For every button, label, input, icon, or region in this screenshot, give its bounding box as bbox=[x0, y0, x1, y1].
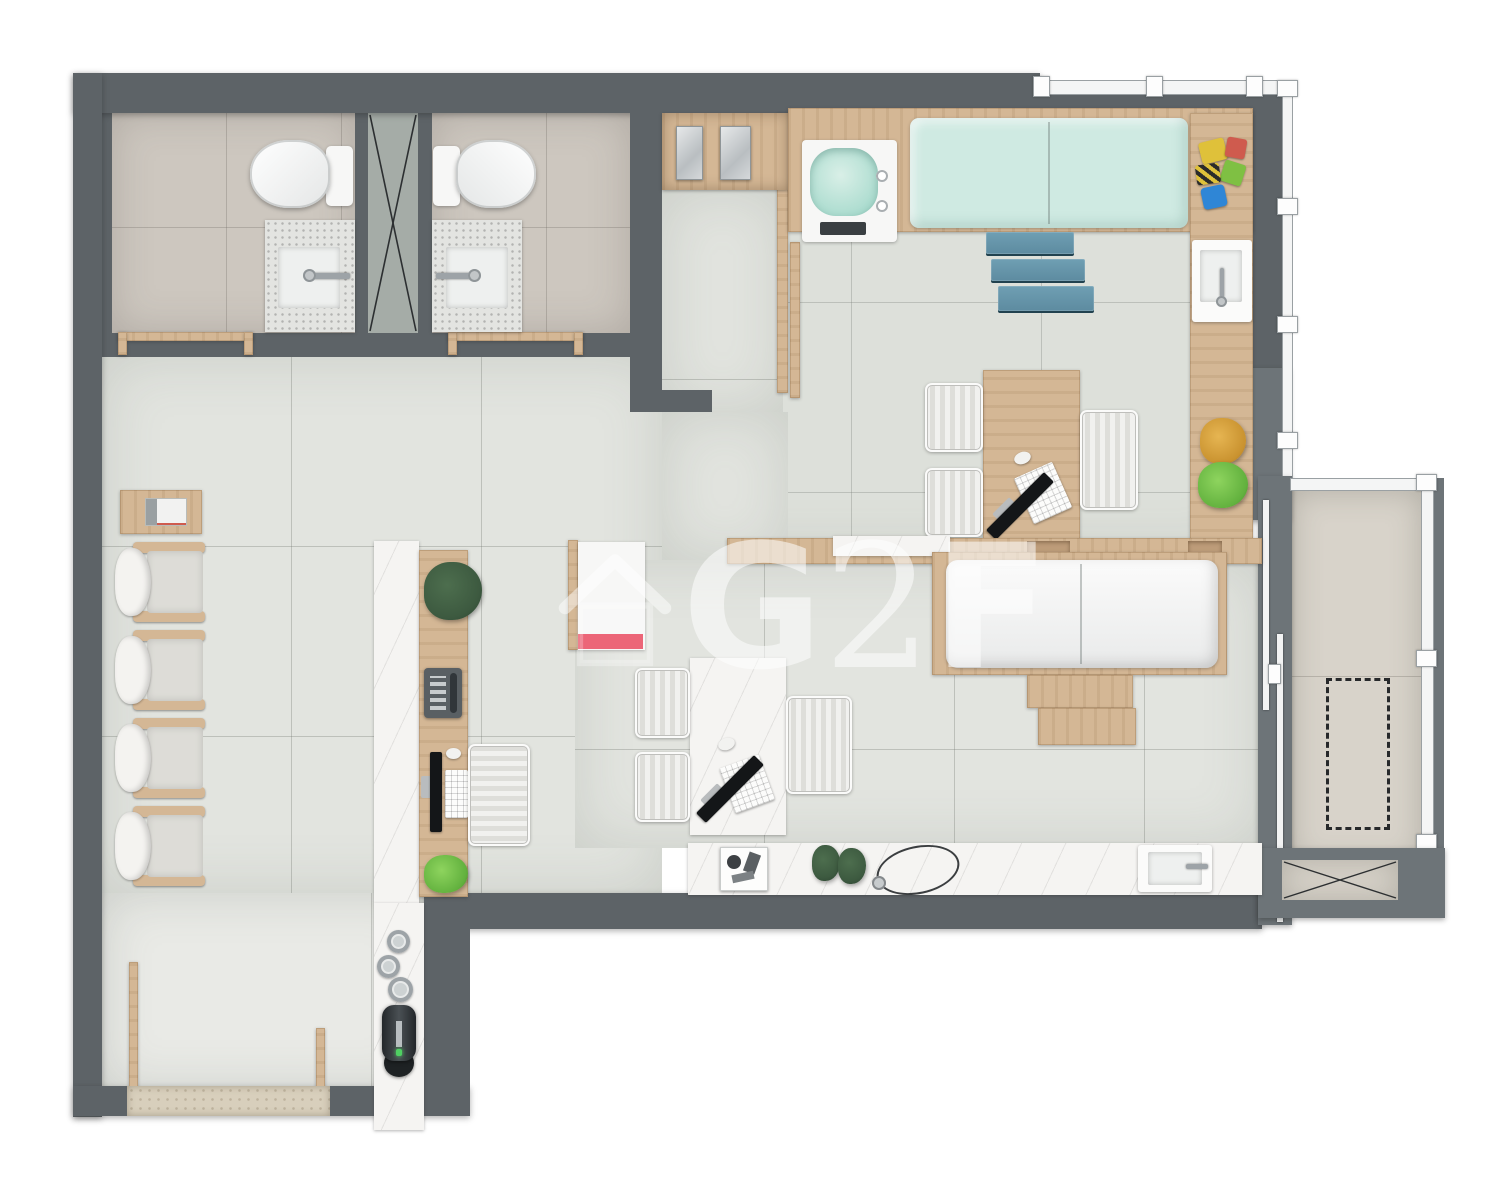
vestibule-floor bbox=[662, 190, 783, 412]
shaft-x-hatch bbox=[368, 113, 418, 333]
instrument-tray-1 bbox=[676, 126, 703, 180]
vestibule-bottom-wall bbox=[630, 390, 712, 412]
exam-pad-seam bbox=[1048, 122, 1050, 224]
faucet-1-drain bbox=[303, 269, 316, 282]
window-mullion bbox=[1277, 432, 1298, 449]
outer-wall-top bbox=[73, 73, 1040, 113]
ac-condenser-dashed-outline bbox=[1326, 678, 1390, 830]
magazines bbox=[145, 498, 187, 526]
seat-cushion bbox=[147, 727, 203, 789]
floor-plan-canvas: G 2 F bbox=[0, 0, 1500, 1189]
window-mullion bbox=[1277, 316, 1298, 333]
pediatric-sink-faucet bbox=[1220, 268, 1224, 298]
seat-cushion bbox=[147, 815, 203, 877]
bathroom-2-door-jamb-left bbox=[448, 332, 457, 355]
toy-block-red bbox=[1224, 136, 1247, 159]
coffee-cup-1 bbox=[387, 930, 410, 953]
pediatric-guest-chair-2 bbox=[925, 468, 983, 537]
seat-cushion bbox=[147, 639, 203, 701]
window-mullion bbox=[1246, 76, 1263, 97]
right-window-band bbox=[1282, 88, 1293, 480]
reception-chair bbox=[468, 744, 530, 846]
reception-mouse bbox=[446, 748, 461, 759]
exam-bed-step-1 bbox=[1027, 675, 1133, 708]
pediatric-sink-drain bbox=[1216, 296, 1227, 307]
consult-guest-chair-2 bbox=[635, 752, 690, 822]
reception-keyboard bbox=[445, 770, 468, 818]
entry-door-frame-post bbox=[129, 962, 138, 1092]
stethoscope-tube bbox=[872, 838, 964, 902]
waiting-armchair-1 bbox=[115, 542, 205, 622]
window-mullion bbox=[1277, 198, 1298, 215]
coffee-machine-led bbox=[396, 1049, 402, 1056]
mattress-seam bbox=[1080, 564, 1082, 664]
back-pillow bbox=[115, 636, 151, 704]
toilet-2-bowl bbox=[456, 140, 536, 208]
duct-shaft bbox=[368, 113, 418, 333]
balcony-top-glazing bbox=[1290, 478, 1421, 491]
seat-cushion bbox=[147, 551, 203, 613]
magazine-table bbox=[120, 490, 202, 534]
reception-monitor bbox=[430, 752, 442, 832]
instrument-tray-2 bbox=[720, 126, 751, 180]
partition-cabinet-red-stripe bbox=[578, 634, 643, 649]
toy-block-stripes bbox=[1195, 162, 1222, 185]
entry-door-leaf bbox=[316, 1028, 325, 1092]
balcony-duct-box bbox=[1282, 860, 1398, 900]
wall-right-of-bathroom2 bbox=[630, 113, 662, 412]
exam-bed-step-2 bbox=[1038, 708, 1136, 745]
bathroom-2-door-jamb-right bbox=[574, 332, 583, 355]
organizer-item bbox=[731, 871, 754, 883]
pediatric-step-stool bbox=[986, 232, 1098, 314]
counter-sink-faucet bbox=[1186, 864, 1208, 869]
window-mullion bbox=[1416, 650, 1437, 667]
reception-phone bbox=[424, 668, 462, 718]
pediatric-doctor-chair bbox=[1080, 410, 1138, 510]
step-slat bbox=[991, 259, 1085, 281]
back-pillow bbox=[115, 724, 151, 792]
baby-scale-dial bbox=[876, 170, 888, 182]
waiting-armchair-3 bbox=[115, 718, 205, 798]
consult-doctor-chair bbox=[786, 696, 852, 794]
back-pillow bbox=[115, 812, 151, 880]
coffee-machine bbox=[382, 1005, 416, 1077]
step-slat bbox=[998, 286, 1094, 311]
toilet-1-bowl bbox=[250, 140, 330, 208]
bathroom-2-door-sill bbox=[448, 332, 583, 341]
reception-front-counter bbox=[374, 541, 419, 903]
coffee-cup-2 bbox=[377, 955, 400, 978]
step-slat bbox=[986, 232, 1074, 254]
back-pillow bbox=[115, 548, 151, 616]
outer-wall-left bbox=[73, 73, 102, 1117]
entry-mat bbox=[127, 1086, 330, 1116]
pediatric-guest-chair-1 bbox=[925, 383, 983, 452]
phone-keypad bbox=[430, 676, 446, 710]
waiting-armchair-4 bbox=[115, 806, 205, 886]
phone-handset bbox=[450, 673, 457, 713]
partition-cabinet-edge bbox=[568, 540, 578, 650]
organizer-item bbox=[727, 855, 741, 869]
window-mullion bbox=[1033, 76, 1050, 97]
bathroom-1-door-sill bbox=[118, 332, 253, 341]
duct-x-hatch bbox=[1282, 860, 1398, 900]
baby-scale-display bbox=[820, 222, 866, 235]
baby-scale-dial bbox=[876, 200, 888, 212]
bathroom-1-door-jamb-right bbox=[244, 332, 253, 355]
waiting-armchair-2 bbox=[115, 630, 205, 710]
desk-organizer-tray bbox=[720, 847, 768, 891]
consult-guest-chair-1 bbox=[635, 668, 690, 738]
coffee-cup-3 bbox=[388, 977, 413, 1002]
coffee-machine-spout bbox=[396, 1021, 402, 1047]
faucet-2-drain bbox=[468, 269, 481, 282]
slider-handle bbox=[1268, 664, 1281, 684]
bathroom-1-door-jamb-left bbox=[118, 332, 127, 355]
faucet-1 bbox=[312, 273, 350, 279]
exam-bed-mattress bbox=[946, 560, 1218, 668]
pediatric-door-leaf bbox=[790, 242, 800, 398]
window-mullion bbox=[1416, 474, 1437, 491]
toilet-1-tank bbox=[326, 146, 353, 206]
stethoscope bbox=[866, 840, 962, 898]
wing-right-wall bbox=[424, 925, 470, 1116]
baby-scale-tray bbox=[810, 148, 878, 216]
stethoscope-chestpiece bbox=[872, 876, 886, 890]
main-bottom-wall bbox=[424, 893, 1262, 929]
window-mullion bbox=[1277, 80, 1298, 97]
window-mullion bbox=[1146, 76, 1163, 97]
